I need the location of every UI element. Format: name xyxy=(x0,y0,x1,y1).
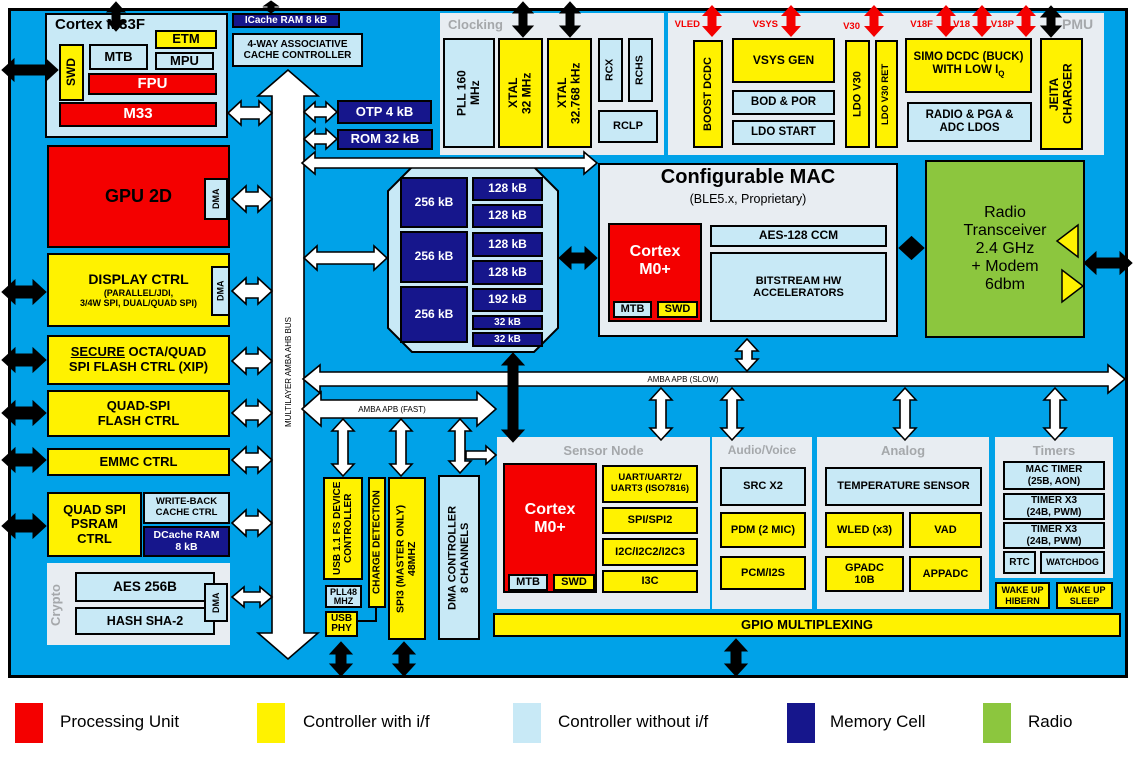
rail-vsys-label: VSYS xyxy=(742,19,778,30)
src-x2-block: SRC X2 xyxy=(720,467,806,506)
memory-cell: 32 kB xyxy=(472,332,543,347)
mac-subtitle: (BLE5.x, Proprietary) xyxy=(598,192,898,206)
mac-title: Configurable MAC xyxy=(598,166,898,189)
bitstream-hw-block: BITSTREAM HW ACCELERATORS xyxy=(710,252,887,322)
watchdog-block: WATCHDOG xyxy=(1040,551,1105,574)
display-ctrl-sub: (PARALLEL/JDI, 3/4W SPI, DUAL/QUAD SPI) xyxy=(80,288,197,308)
simo-dcdc-block: SIMO DCDC (BUCK) WITH LOW IQ xyxy=(905,38,1032,93)
otp-block: OTP 4 kB xyxy=(337,100,432,124)
ldo-start-block: LDO START xyxy=(732,120,835,145)
icache-ram-block: ICache RAM 8 kB xyxy=(232,13,340,28)
legend-label-memory: Memory Cell xyxy=(830,712,925,732)
rail-v18p-label: V18P xyxy=(988,19,1014,30)
sensor-swd-block: SWD xyxy=(553,574,595,591)
timers-label: Timers xyxy=(995,443,1113,458)
gpu-2d-label: GPU 2D xyxy=(105,186,172,206)
timer-x3-block-1: TIMER X3 (24B, PWM) xyxy=(1003,493,1105,520)
memory-cell: 256 kB xyxy=(400,231,468,283)
memory-cell: 128 kB xyxy=(472,260,543,285)
simo-line2: WITH LOW IQ xyxy=(932,64,1004,79)
pll160-block: PLL 160 MHz xyxy=(443,38,495,148)
gpu-dma-tab: DMA xyxy=(204,178,228,220)
simo-line1: SIMO DCDC (BUCK) xyxy=(914,51,1024,64)
memory-cell: 128 kB xyxy=(472,232,543,257)
vsys-gen-block: VSYS GEN xyxy=(732,38,835,83)
vad-block: VAD xyxy=(909,512,982,548)
jeita-charger-block: JEITA CHARGER xyxy=(1040,38,1083,150)
pmu-label: PMU xyxy=(1062,16,1093,32)
memory-cell: 256 kB xyxy=(400,286,468,343)
write-back-cache-ctrl-block: WRITE-BACK CACHE CTRL xyxy=(143,492,230,524)
bod-por-block: BOD & POR xyxy=(732,90,835,115)
quad-spi-psram-ctrl-block: QUAD SPI PSRAM CTRL xyxy=(47,492,142,557)
timer-x3-block-2: TIMER X3 (24B, PWM) xyxy=(1003,522,1105,549)
xtal-32mhz-block: XTAL 32 MHz xyxy=(498,38,543,148)
wled-block: WLED (x3) xyxy=(825,512,904,548)
spi-block: SPI/SPI2 xyxy=(602,507,698,534)
legend-swatch-memory xyxy=(787,703,815,743)
m33f-fpu-block: FPU xyxy=(88,73,217,95)
xtal-32khz-block: XTAL 32.768 kHz xyxy=(547,38,592,148)
m33f-core-block: M33 xyxy=(59,102,217,127)
appadc-block: APPADC xyxy=(909,556,982,592)
uart-block: UART/UART2/ UART3 (ISO7816) xyxy=(602,465,698,503)
memory-cell: 128 kB xyxy=(472,204,543,228)
radio-pga-adc-ldos-block: RADIO & PGA & ADC LDOS xyxy=(907,102,1032,142)
mac-cortex-m0-label: Cortex M0+ xyxy=(630,243,681,279)
memory-cell: 256 kB xyxy=(400,177,468,228)
mac-swd-block: SWD xyxy=(657,301,698,318)
m33f-title: Cortex M33F xyxy=(55,16,145,33)
rchs-block: RCHS xyxy=(628,38,653,102)
sensor-mtb-block: MTB xyxy=(508,574,548,591)
cache-controller-block: 4-WAY ASSOCIATIVE CACHE CONTROLLER xyxy=(232,33,363,67)
display-dma-tab: DMA xyxy=(211,266,230,316)
legend-label-controller-if: Controller with i/f xyxy=(303,712,430,732)
spi3-block: SPI3 (MASTER ONLY) 48MHZ xyxy=(388,477,426,640)
m33f-mpu-block: MPU xyxy=(155,52,214,70)
legend-label-processing: Processing Unit xyxy=(60,712,179,732)
radio-transceiver-block: Radio Transceiver 2.4 GHz + Modem 6dbm xyxy=(925,160,1085,338)
legend-swatch-radio xyxy=(983,703,1011,743)
pcm-i2s-block: PCM/I2S xyxy=(720,556,806,590)
m33f-etm-block: ETM xyxy=(155,30,217,49)
dcache-ram-block: DCache RAM 8 kB xyxy=(143,526,230,557)
wake-up-sleep-block: WAKE UP SLEEP xyxy=(1056,582,1113,609)
usb-phy-block: USB PHY xyxy=(325,611,358,637)
secure-flash-ctrl-block: SECURE OCTA/QUAD SPI FLASH CTRL (XIP) xyxy=(47,335,230,385)
m33f-mtb-block: MTB xyxy=(89,44,148,70)
audio-voice-label: Audio/Voice xyxy=(712,443,812,457)
rail-v18-label: V18 xyxy=(944,19,970,30)
secure-flash-text: SECURE OCTA/QUAD SPI FLASH CTRL (XIP) xyxy=(69,345,208,374)
rail-v18f-label: V18F xyxy=(906,19,933,30)
i2c-block: I2C/I2C2/I2C3 xyxy=(602,538,698,566)
legend-swatch-controller-if xyxy=(257,703,285,743)
memory-cell: 192 kB xyxy=(472,288,543,312)
aes-128-ccm-block: AES-128 CCM xyxy=(710,225,887,247)
soc-block-diagram: Clocking PMU Sensor Node Audio/Voice Ana… xyxy=(0,0,1137,759)
rtc-block: RTC xyxy=(1003,551,1036,574)
clocking-label: Clocking xyxy=(448,17,503,32)
usb-device-controller-block: USB 1.1 FS DEVICE CONTROLLER xyxy=(323,477,363,580)
emmc-ctrl-block: EMMC CTRL xyxy=(47,448,230,476)
pdm-block: PDM (2 MIC) xyxy=(720,512,806,548)
boost-dcdc-block: BOOST DCDC xyxy=(693,40,723,148)
m33f-swd-block: SWD xyxy=(59,44,84,101)
rail-vled-label: VLED xyxy=(664,19,700,30)
sensor-node-label: Sensor Node xyxy=(497,443,710,458)
gpu-2d-block: GPU 2D xyxy=(47,145,230,248)
wake-up-hibern-block: WAKE UP HIBERN xyxy=(995,582,1050,609)
display-ctrl-title: DISPLAY CTRL xyxy=(88,272,188,288)
mac-timer-block: MAC TIMER (25B, AON) xyxy=(1003,461,1105,490)
dma-controller-block: DMA CONTROLLER 8 CHANNELS xyxy=(438,475,480,640)
sensor-cortex-m0-label: Cortex M0+ xyxy=(525,501,576,537)
legend-swatch-controller-noif xyxy=(513,703,541,743)
i3c-block: I3C xyxy=(602,570,698,593)
legend-swatch-processing xyxy=(15,703,43,743)
quad-spi-flash-ctrl-block: QUAD-SPI FLASH CTRL xyxy=(47,390,230,437)
crypto-label: Crypto xyxy=(48,573,63,637)
crypto-dma-tab: DMA xyxy=(204,583,228,622)
mac-mtb-block: MTB xyxy=(613,301,652,318)
hash-sha2-block: HASH SHA-2 xyxy=(75,607,215,635)
aes-256-block: AES 256B xyxy=(75,572,215,602)
rclp-block: RCLP xyxy=(598,110,658,143)
ldo-v30-ret-block: LDO V30 RET xyxy=(875,40,898,148)
temperature-sensor-block: TEMPERATURE SENSOR xyxy=(825,467,982,506)
legend-label-controller-noif: Controller without i/f xyxy=(558,712,708,732)
rcx-block: RCX xyxy=(598,38,623,102)
ldo-v30-block: LDO V30 xyxy=(845,40,870,148)
analog-label: Analog xyxy=(817,443,989,458)
charge-detection-block: CHARGE DETECTION xyxy=(368,477,386,608)
memory-cell: 128 kB xyxy=(472,177,543,201)
gpadc-block: GPADC 10B xyxy=(825,556,904,592)
rom-block: ROM 32 kB xyxy=(337,129,433,150)
display-ctrl-block: DISPLAY CTRL (PARALLEL/JDI, 3/4W SPI, DU… xyxy=(47,253,230,327)
legend-label-radio: Radio xyxy=(1028,712,1072,732)
memory-cell: 32 kB xyxy=(472,315,543,330)
pll48-block: PLL48 MHZ xyxy=(325,585,362,608)
gpio-multiplexing-bar: GPIO MULTIPLEXING xyxy=(493,613,1121,637)
rail-v30-label: V30 xyxy=(826,21,860,32)
